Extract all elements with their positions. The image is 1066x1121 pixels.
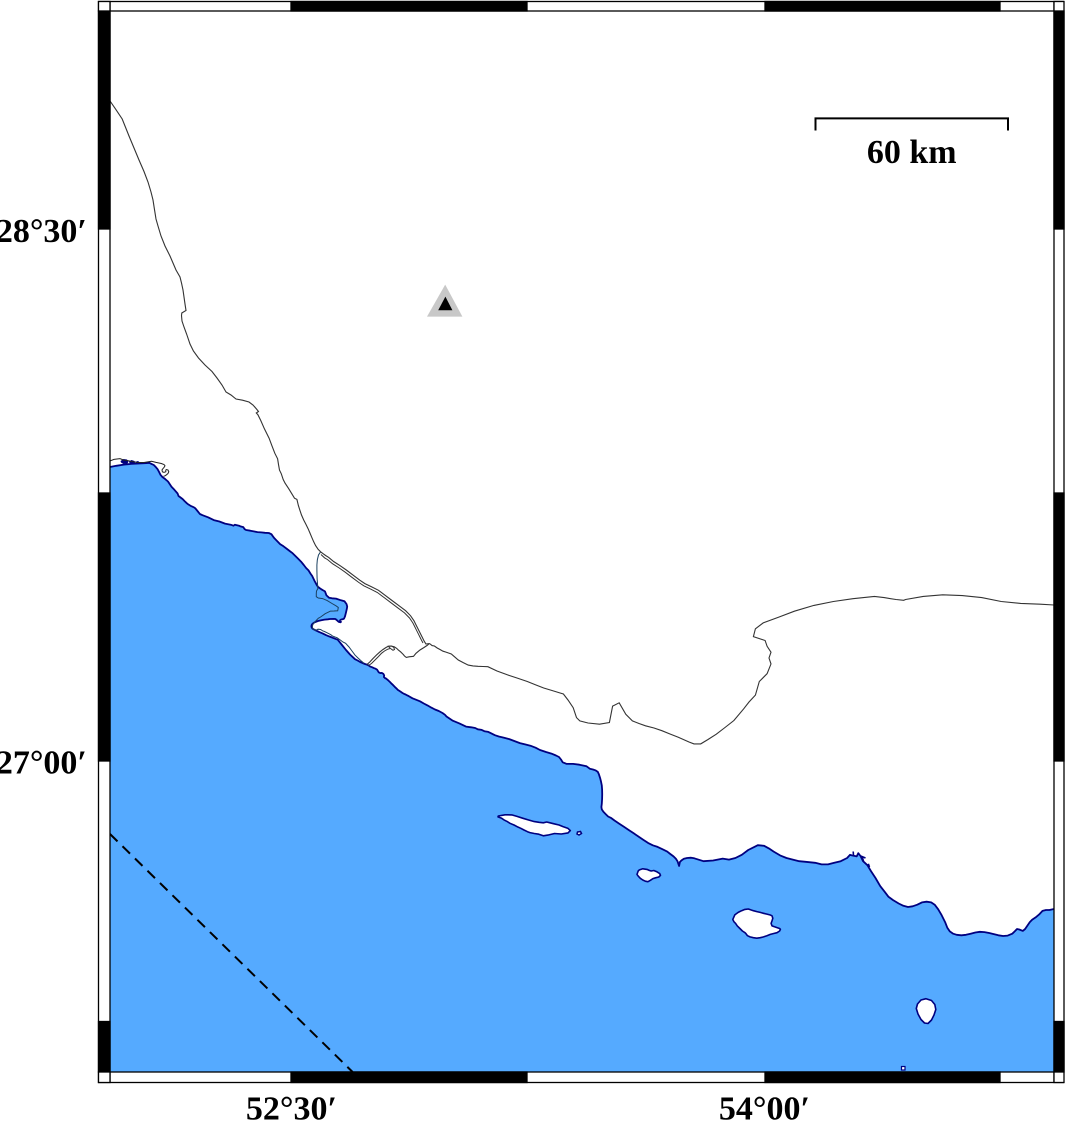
- svg-text:54°00′: 54°00′: [719, 1091, 810, 1121]
- svg-text:28°30′: 28°30′: [0, 213, 87, 250]
- svg-text:27°00′: 27°00′: [0, 745, 87, 782]
- svg-text:60 km: 60 km: [867, 134, 957, 171]
- svg-text:52°30′: 52°30′: [246, 1091, 337, 1121]
